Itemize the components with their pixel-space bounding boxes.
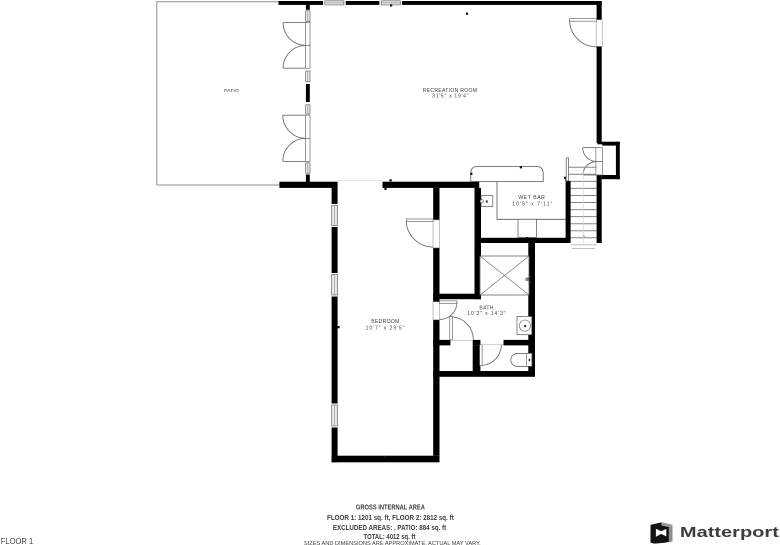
- svg-text:BEDROOM: BEDROOM: [371, 319, 399, 325]
- svg-text:31'5" x 19'4": 31'5" x 19'4": [432, 94, 469, 100]
- svg-text:EXCLUDED AREAS: , PATIO: 884 s: EXCLUDED AREAS: , PATIO: 884 sq. ft: [333, 524, 447, 532]
- svg-text:10'7" x 29'5": 10'7" x 29'5": [366, 325, 406, 331]
- svg-text:SIZES AND DIMENSIONS ARE APPRO: SIZES AND DIMENSIONS ARE APPROXIMATE, AC…: [304, 541, 481, 545]
- svg-text:10'2" x 14'3": 10'2" x 14'3": [467, 311, 506, 317]
- svg-text:FLOOR 1: 1201 sq. ft, FLOOR 2:: FLOOR 1: 1201 sq. ft, FLOOR 2: 2812 sq. …: [327, 515, 454, 523]
- svg-text:PATIO: PATIO: [224, 88, 239, 94]
- svg-text:FLOOR 1: FLOOR 1: [1, 536, 34, 545]
- svg-text:Matterport: Matterport: [680, 523, 779, 540]
- svg-text:GROSS INTERNAL AREA: GROSS INTERNAL AREA: [356, 504, 425, 512]
- svg-text:10'5" x 7'11": 10'5" x 7'11": [512, 201, 553, 207]
- svg-text:WET BAR: WET BAR: [518, 195, 545, 201]
